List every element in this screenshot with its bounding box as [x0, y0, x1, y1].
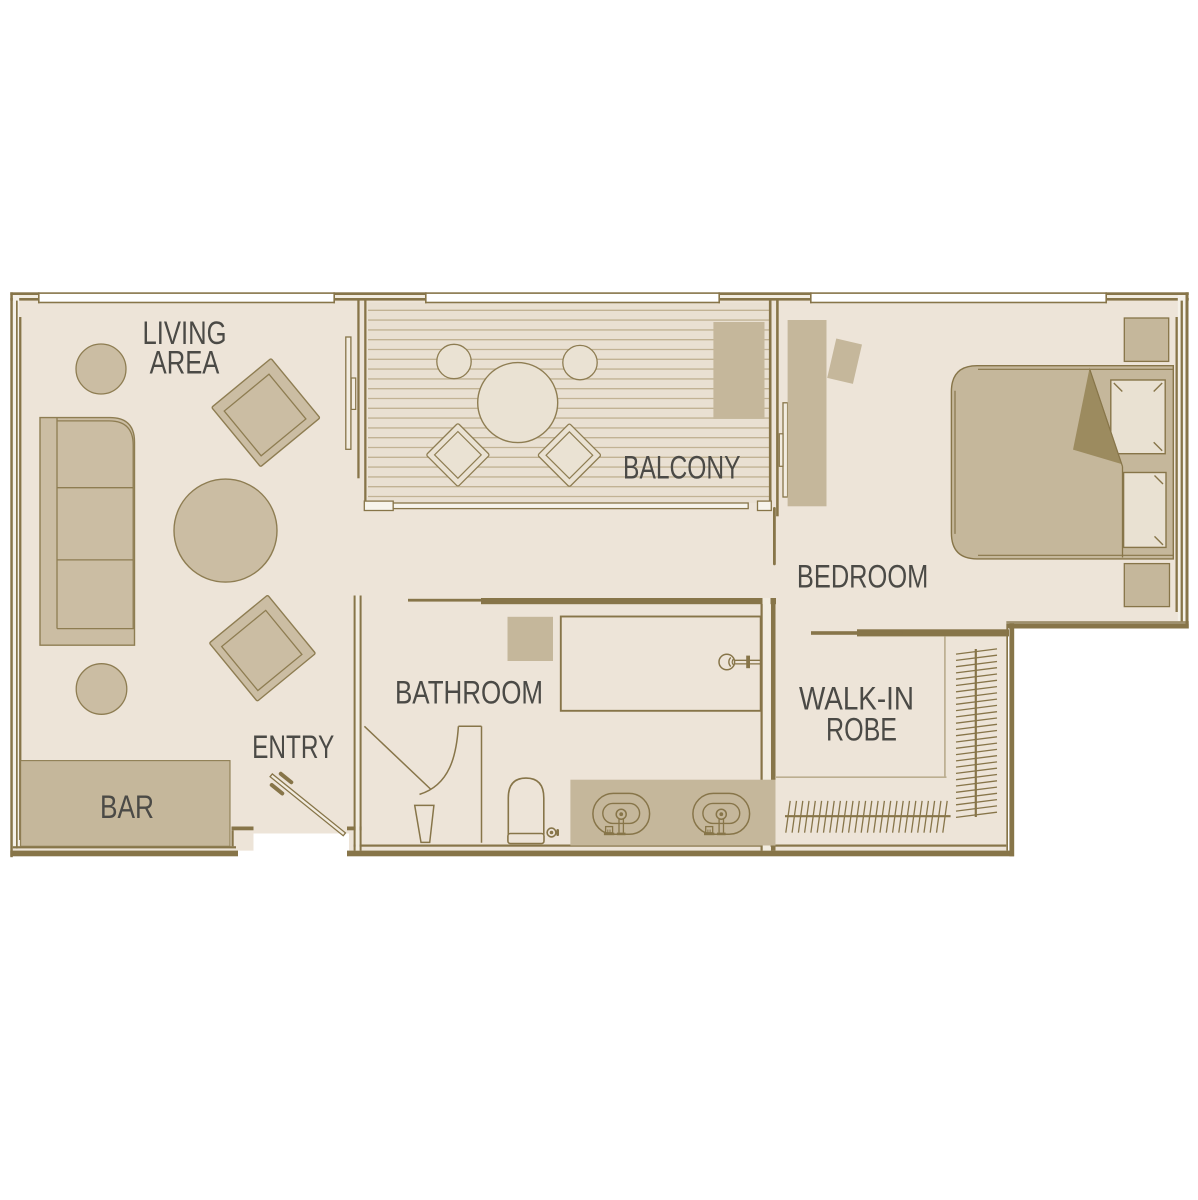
svg-text:BEDROOM: BEDROOM — [797, 558, 928, 595]
svg-text:BATHROOM: BATHROOM — [395, 674, 543, 711]
svg-text:BAR: BAR — [100, 788, 154, 825]
svg-text:ROBE: ROBE — [826, 711, 897, 748]
svg-text:BALCONY: BALCONY — [623, 448, 741, 485]
svg-text:ENTRY: ENTRY — [252, 728, 334, 765]
svg-text:AREA: AREA — [150, 344, 220, 381]
